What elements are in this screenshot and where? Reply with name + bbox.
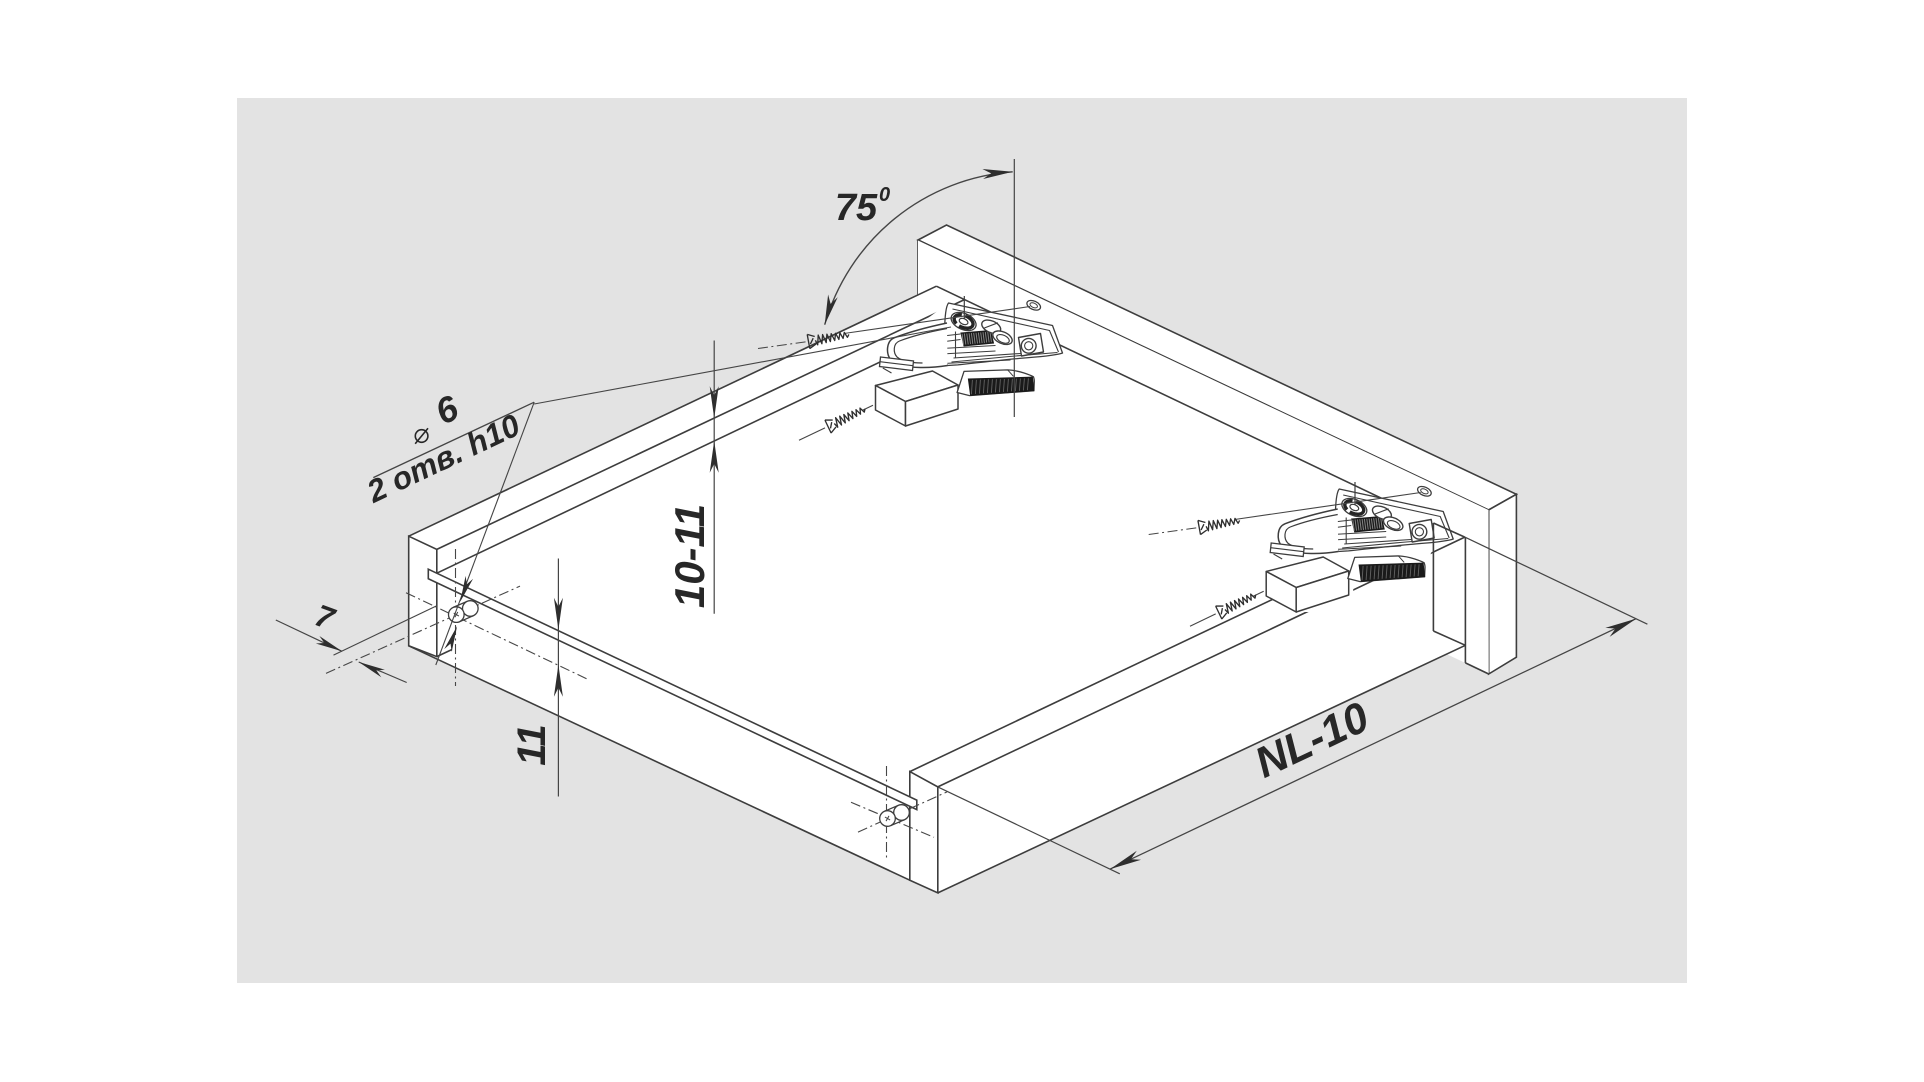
svg-text:11: 11	[510, 724, 554, 766]
svg-text:0: 0	[879, 184, 890, 206]
svg-text:75: 75	[835, 187, 878, 229]
svg-text:10-11: 10-11	[666, 504, 713, 608]
